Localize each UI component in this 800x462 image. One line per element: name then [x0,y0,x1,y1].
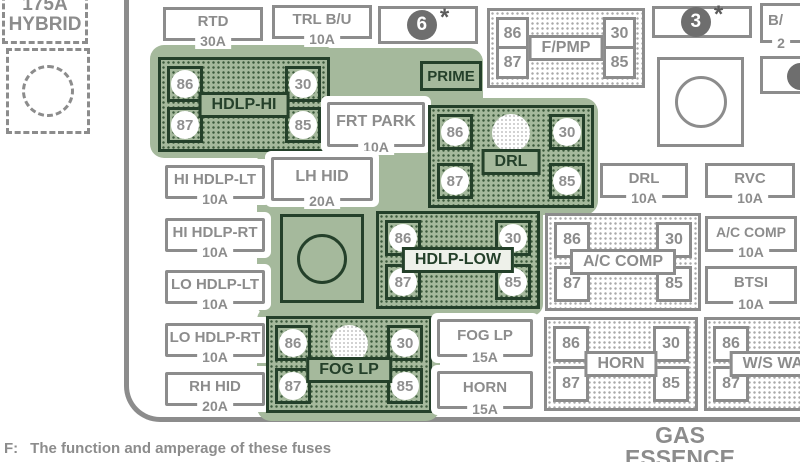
pin-85: 85 [603,46,636,79]
fuse-rtd: RTD 30A [163,7,263,41]
relay-label: DRL [482,149,541,175]
fuse-hi-hdlp-lt: HI HDLP-LT 10A [165,165,265,199]
pin-86: 86 [275,325,311,361]
pin-30: 30 [387,325,423,361]
relay-label: W/S WASH [730,351,800,377]
pin-85: 85 [387,368,423,404]
fuse-bu-cutoff: B/ 2 [760,3,800,43]
circled-number-icon [787,63,800,90]
relay-hdlp-hi: 86 30 87 85 HDLP-HI [158,57,330,152]
relay-button-icon [492,114,530,152]
fuse-btsi: BTSI 10A [705,266,797,304]
fuse-lo-hdlp-lt: LO HDLP-LT 10A [165,270,265,304]
marker-cutoff [760,56,800,94]
mega-fuse-name: HYBRID [9,15,82,35]
relay-f-pmp: 86 30 87 85 F/PMP [487,8,645,88]
mega-fuse-amp: 175A [22,0,67,15]
fuse-lo-hdlp-rt: LO HDLP-RT 10A [165,323,265,357]
relay-hdlp-low: 86 30 87 85 HDLP-LOW [376,211,540,309]
pin-30: 30 [653,326,689,362]
relay-label: FOG LP [306,357,392,383]
relay-label: F/PMP [529,35,604,61]
fuse-box-diagram: 175A HYBRID RTD 30A TRL B/U 10A 6 * 3 * … [0,0,800,462]
relay-fog-lp: 86 30 87 85 FOG LP [266,316,432,413]
circle-icon [675,76,727,128]
fuse-horn: HORN 15A [437,371,533,409]
fuse-lh-hid: LH HID 20A [271,157,373,201]
pin-85: 85 [653,366,689,402]
marker-6: 6 * [378,6,478,44]
fuse-fog-lp: FOG LP 15A [437,319,533,357]
asterisk-icon: * [440,4,449,32]
circled-6-icon: 6 [407,10,437,40]
relay-ac-comp: 86 30 87 85 A/C COMP [545,213,701,311]
pin-85: 85 [285,107,321,143]
fuse-rh-hid: RH HID 20A [165,372,265,406]
mega-fuse-175a-hybrid: 175A HYBRID [2,0,88,44]
relay-label: HDLP-LOW [402,247,514,273]
breaker-center [280,214,364,303]
pin-87: 87 [437,163,473,199]
pin-30: 30 [549,114,585,150]
relay-label: HORN [584,351,657,377]
relay-horn: 86 30 87 85 HORN [544,317,698,411]
mega-fuse-socket [6,48,90,134]
pin-30: 30 [285,66,321,102]
mega-fuse-circle-icon [22,65,74,117]
gas-essence-label: GAS ESSENCE [600,424,760,462]
relay-label: A/C COMP [570,249,676,275]
fuse-rvc: RVC 10A [705,163,795,198]
fuse-hi-hdlp-rt: HI HDLP-RT 10A [165,218,265,252]
circle-icon [297,234,347,284]
pin-86: 86 [437,114,473,150]
circled-3-icon: 3 [681,7,711,37]
relay-ws-wash: 86 87 W/S WASH [704,317,800,411]
relay-label: HDLP-HI [199,92,290,118]
marker-3: 3 * [652,6,752,38]
prime-label: PRIME [420,61,482,91]
relay-drl: 86 30 87 85 DRL [428,105,594,208]
pin-85: 85 [549,163,585,199]
fuse-frt-park: FRT PARK 10A [327,102,425,147]
footnote: F:The function and amperage of these fus… [4,440,331,457]
fuse-ac-comp: A/C COMP 10A [705,216,797,252]
fuse-drl: DRL 10A [600,163,688,198]
pin-87: 87 [496,46,529,79]
asterisk-icon: * [714,1,723,29]
fuse-trl-bu: TRL B/U 10A [272,5,372,39]
breaker-top-right [657,57,744,147]
